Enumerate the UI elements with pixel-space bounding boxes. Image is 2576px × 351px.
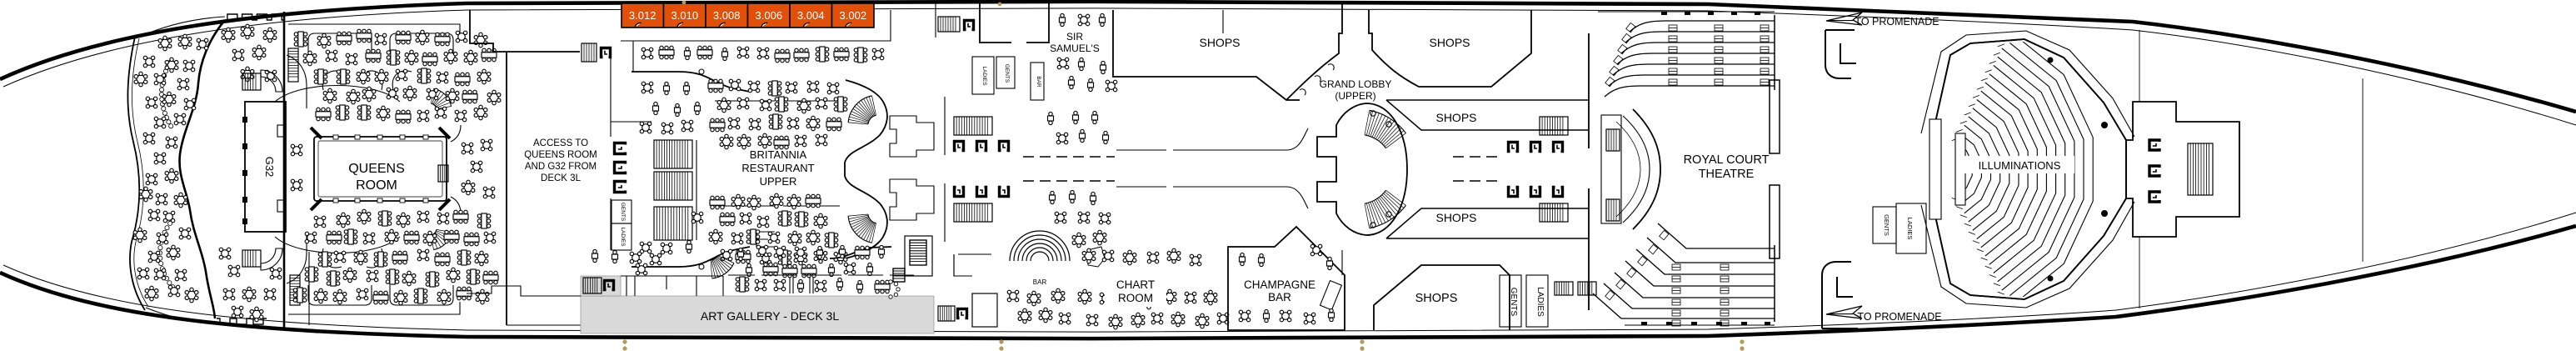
svg-text:CHAMPAGNE: CHAMPAGNE: [1244, 278, 1315, 291]
svg-text:GENTS: GENTS: [1004, 64, 1010, 83]
svg-text:TO PROMENADE: TO PROMENADE: [1855, 16, 1939, 28]
svg-text:GRAND LOBBY: GRAND LOBBY: [1320, 78, 1392, 90]
svg-text:3.006: 3.006: [756, 9, 783, 22]
svg-text:G32: G32: [263, 157, 276, 178]
svg-text:LADIES: LADIES: [1535, 287, 1545, 317]
svg-text:DECK 3L: DECK 3L: [541, 173, 582, 183]
svg-text:BAR: BAR: [1036, 76, 1041, 88]
svg-text:QUEENS: QUEENS: [348, 162, 405, 176]
svg-text:SHOPS: SHOPS: [1435, 211, 1476, 224]
svg-text:LADIES: LADIES: [1906, 218, 1914, 240]
svg-text:UPPER: UPPER: [760, 175, 797, 188]
svg-text:AND G32 FROM: AND G32 FROM: [525, 162, 597, 172]
svg-text:THEATRE: THEATRE: [1699, 168, 1755, 181]
svg-text:BRITANNIA: BRITANNIA: [750, 148, 807, 161]
svg-text:SIR: SIR: [1066, 31, 1083, 43]
svg-text:3.010: 3.010: [671, 9, 699, 22]
svg-text:ROYAL COURT: ROYAL COURT: [1684, 153, 1770, 167]
svg-text:3.004: 3.004: [797, 9, 825, 22]
svg-text:SHOPS: SHOPS: [1415, 292, 1458, 305]
svg-text:GENTS: GENTS: [1509, 288, 1518, 317]
svg-text:ROOM: ROOM: [1118, 292, 1153, 304]
svg-text:BAR: BAR: [1268, 291, 1291, 303]
svg-text:3.002: 3.002: [840, 9, 867, 22]
svg-text:RESTAURANT: RESTAURANT: [741, 162, 814, 174]
svg-text:LADIES: LADIES: [620, 227, 626, 247]
svg-text:BAR: BAR: [1033, 278, 1047, 286]
svg-text:(UPPER): (UPPER): [1335, 90, 1375, 102]
svg-text:ACCESS TO: ACCESS TO: [533, 138, 588, 148]
svg-text:CHART: CHART: [1116, 278, 1155, 291]
svg-text:ART GALLERY - DECK 3L: ART GALLERY - DECK 3L: [701, 309, 839, 323]
svg-text:SHOPS: SHOPS: [1199, 36, 1240, 49]
svg-text:ILLUMINATIONS: ILLUMINATIONS: [1979, 159, 2061, 172]
svg-text:SHOPS: SHOPS: [1435, 111, 1476, 124]
svg-text:3.008: 3.008: [713, 9, 741, 22]
svg-text:GENTS: GENTS: [620, 203, 626, 222]
svg-text:LADIES: LADIES: [981, 66, 987, 86]
svg-text:GENTS: GENTS: [1883, 214, 1890, 236]
svg-text:TO PROMENADE: TO PROMENADE: [1857, 311, 1941, 323]
svg-text:SHOPS: SHOPS: [1429, 36, 1470, 49]
svg-text:SAMUEL'S: SAMUEL'S: [1050, 43, 1100, 54]
svg-text:ROOM: ROOM: [356, 178, 397, 193]
svg-text:3.012: 3.012: [629, 9, 656, 22]
svg-text:QUEENS ROOM: QUEENS ROOM: [524, 150, 597, 160]
